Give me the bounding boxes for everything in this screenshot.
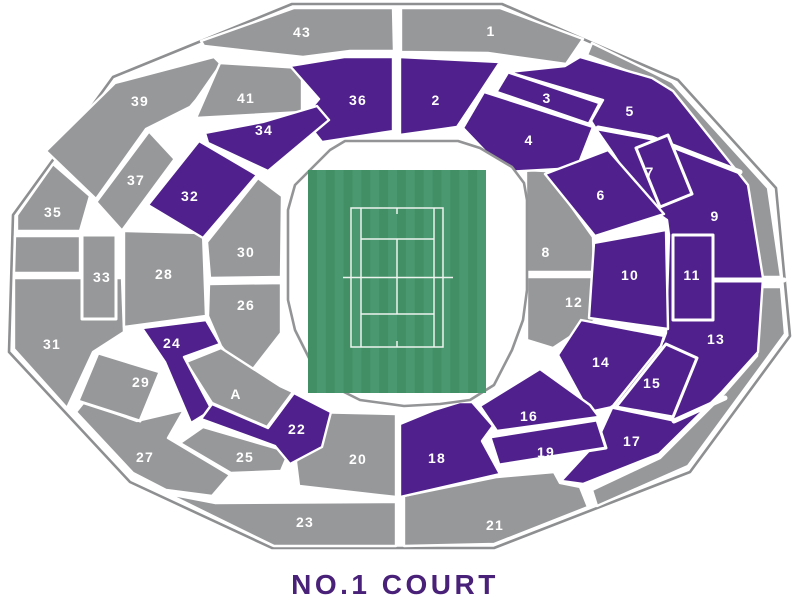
svg-text:5: 5 xyxy=(626,103,635,119)
svg-text:17: 17 xyxy=(623,433,641,449)
svg-text:22: 22 xyxy=(288,421,306,437)
svg-text:16: 16 xyxy=(520,408,538,424)
svg-text:10: 10 xyxy=(621,267,639,283)
svg-text:29: 29 xyxy=(132,374,150,390)
svg-text:7: 7 xyxy=(646,164,655,180)
svg-text:1: 1 xyxy=(487,23,496,39)
svg-text:11: 11 xyxy=(683,267,700,283)
svg-text:NO.1 COURT: NO.1 COURT xyxy=(291,569,499,600)
svg-text:18: 18 xyxy=(428,450,446,466)
svg-text:3: 3 xyxy=(543,90,552,106)
svg-text:12: 12 xyxy=(565,294,583,310)
svg-text:34: 34 xyxy=(255,122,273,138)
svg-text:19: 19 xyxy=(537,444,555,460)
svg-text:43: 43 xyxy=(293,24,311,40)
svg-text:A: A xyxy=(230,386,241,402)
svg-text:9: 9 xyxy=(711,208,720,224)
svg-text:27: 27 xyxy=(136,449,154,465)
svg-text:13: 13 xyxy=(707,331,725,347)
svg-text:36: 36 xyxy=(349,92,367,108)
svg-text:41: 41 xyxy=(237,90,255,106)
svg-text:35: 35 xyxy=(44,204,62,220)
svg-text:23: 23 xyxy=(296,514,314,530)
svg-text:39: 39 xyxy=(131,93,149,109)
svg-text:26: 26 xyxy=(237,297,255,313)
svg-text:24: 24 xyxy=(163,335,181,351)
svg-text:33: 33 xyxy=(93,269,111,285)
svg-text:6: 6 xyxy=(597,187,606,203)
svg-text:25: 25 xyxy=(236,449,254,465)
svg-text:28: 28 xyxy=(155,266,173,282)
svg-text:8: 8 xyxy=(542,244,551,260)
svg-text:15: 15 xyxy=(643,375,661,391)
svg-text:4: 4 xyxy=(525,132,534,148)
svg-text:37: 37 xyxy=(127,172,145,188)
svg-text:14: 14 xyxy=(592,354,610,370)
svg-text:21: 21 xyxy=(486,517,504,533)
svg-text:32: 32 xyxy=(181,188,199,204)
svg-text:30: 30 xyxy=(237,244,255,260)
svg-text:20: 20 xyxy=(349,451,367,467)
svg-text:31: 31 xyxy=(43,336,61,352)
svg-text:2: 2 xyxy=(432,92,441,108)
